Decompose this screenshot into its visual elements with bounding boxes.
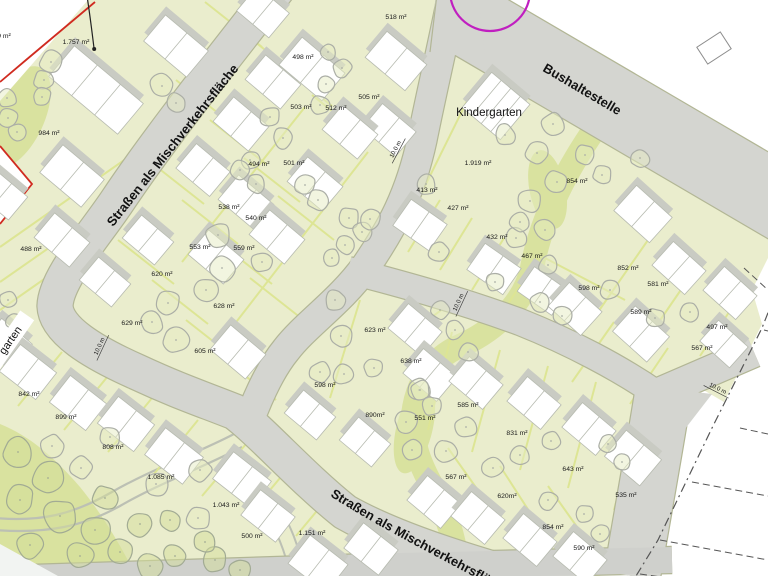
svg-text:585 m²: 585 m² — [457, 402, 479, 409]
svg-text:620m²: 620m² — [497, 493, 517, 500]
svg-text:432 m²: 432 m² — [486, 234, 508, 241]
svg-text:538 m²: 538 m² — [218, 204, 240, 211]
svg-text:590 m²: 590 m² — [573, 545, 595, 552]
svg-text:505 m²: 505 m² — [358, 94, 380, 101]
svg-text:9 m²: 9 m² — [0, 33, 12, 40]
svg-text:628 m²: 628 m² — [213, 303, 235, 310]
svg-text:1.757 m²: 1.757 m² — [63, 39, 91, 46]
svg-text:551 m²: 551 m² — [414, 415, 436, 422]
svg-text:498 m²: 498 m² — [292, 54, 314, 61]
svg-text:854 m²: 854 m² — [566, 178, 588, 185]
svg-text:427 m²: 427 m² — [447, 205, 469, 212]
svg-text:1.151 m²: 1.151 m² — [299, 530, 327, 537]
svg-text:623 m²: 623 m² — [364, 327, 386, 334]
svg-text:589 m²: 589 m² — [630, 309, 652, 316]
svg-text:518 m²: 518 m² — [385, 14, 407, 21]
svg-text:620 m²: 620 m² — [151, 271, 173, 278]
svg-text:500 m²: 500 m² — [241, 533, 263, 540]
svg-text:567 m²: 567 m² — [691, 345, 713, 352]
svg-text:1.085 m²: 1.085 m² — [148, 474, 176, 481]
svg-text:984 m²: 984 m² — [38, 130, 60, 137]
svg-text:638 m²: 638 m² — [400, 358, 422, 365]
svg-text:890m²: 890m² — [365, 412, 385, 419]
svg-text:842 m²: 842 m² — [18, 391, 40, 398]
svg-text:512 m²: 512 m² — [325, 105, 347, 112]
svg-text:1.919 m²: 1.919 m² — [465, 160, 493, 167]
svg-text:501 m²: 501 m² — [283, 160, 305, 167]
svg-text:467 m²: 467 m² — [521, 253, 543, 260]
svg-text:808 m²: 808 m² — [102, 444, 124, 451]
svg-text:605 m²: 605 m² — [194, 348, 216, 355]
svg-text:488 m²: 488 m² — [20, 246, 42, 253]
svg-text:1.043 m²: 1.043 m² — [213, 502, 241, 509]
svg-text:598 m²: 598 m² — [314, 382, 336, 389]
svg-text:553 m²: 553 m² — [189, 244, 211, 251]
svg-text:567 m²: 567 m² — [445, 474, 467, 481]
svg-text:413 m²: 413 m² — [416, 187, 438, 194]
svg-text:854 m²: 854 m² — [542, 524, 564, 531]
svg-text:497 m²: 497 m² — [706, 324, 728, 331]
svg-text:598 m²: 598 m² — [578, 285, 600, 292]
svg-text:559 m²: 559 m² — [233, 245, 255, 252]
svg-text:Kindergarten: Kindergarten — [456, 107, 522, 119]
svg-text:899 m²: 899 m² — [55, 414, 77, 421]
svg-text:540 m²: 540 m² — [245, 215, 267, 222]
svg-text:643 m²: 643 m² — [562, 466, 584, 473]
svg-text:581 m²: 581 m² — [647, 281, 669, 288]
svg-text:503 m²: 503 m² — [290, 104, 312, 111]
svg-text:494 m²: 494 m² — [248, 161, 270, 168]
svg-text:831 m²: 831 m² — [506, 430, 528, 437]
svg-text:535 m²: 535 m² — [615, 492, 637, 499]
svg-text:629 m²: 629 m² — [121, 320, 143, 327]
svg-text:852 m²: 852 m² — [617, 265, 639, 272]
